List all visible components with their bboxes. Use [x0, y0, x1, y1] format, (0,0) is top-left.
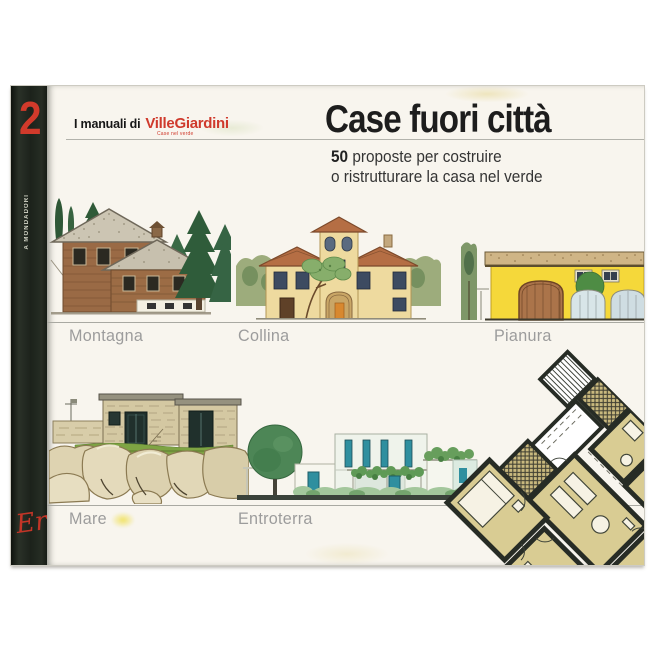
label-montagna: Montagna: [69, 326, 143, 346]
book-spine: 2 A MONDADORI Er: [11, 86, 47, 565]
subtitle-line1: proposte per costruire: [348, 148, 502, 166]
series-header: I manuali di VilleGiardini Case nel verd…: [74, 115, 229, 132]
pianura-farmhouse-illustration: [461, 229, 644, 322]
label-collina: Collina: [238, 326, 289, 346]
subtitle-number: 50: [331, 148, 348, 166]
mare-stone-house-illustration: [49, 387, 249, 504]
subtitle-line2: o ristrutturare la casa nel verde: [331, 168, 543, 186]
brand-logo: VilleGiardini: [145, 115, 228, 132]
cover-subtitle: 50 proposte per costruire o ristrutturar…: [331, 147, 543, 187]
series-prefix: I manuali di: [74, 117, 140, 131]
brand-tagline: Case nel verde: [157, 131, 193, 137]
collina-villa-illustration: [236, 204, 441, 322]
header-rule: [66, 139, 644, 140]
series-number: 2: [19, 95, 42, 141]
publisher-logo: A MONDADORI: [24, 194, 30, 250]
label-pianura: Pianura: [494, 326, 552, 346]
label-mare: Mare: [69, 509, 107, 529]
montagna-house-illustration: [49, 194, 231, 322]
cover-title: Case fuori città: [325, 100, 551, 140]
spine-script-mark: Er: [14, 508, 49, 538]
scan-background: 2 A MONDADORI Er I manuali di VilleGiard…: [0, 0, 650, 650]
row1-separator-rule: [47, 322, 644, 323]
yellow-stain: [111, 512, 135, 528]
front-cover: I manuali di VilleGiardini Case nel verd…: [47, 86, 644, 565]
book-cover: 2 A MONDADORI Er I manuali di VilleGiard…: [10, 85, 645, 566]
label-entroterra: Entroterra: [238, 509, 313, 529]
